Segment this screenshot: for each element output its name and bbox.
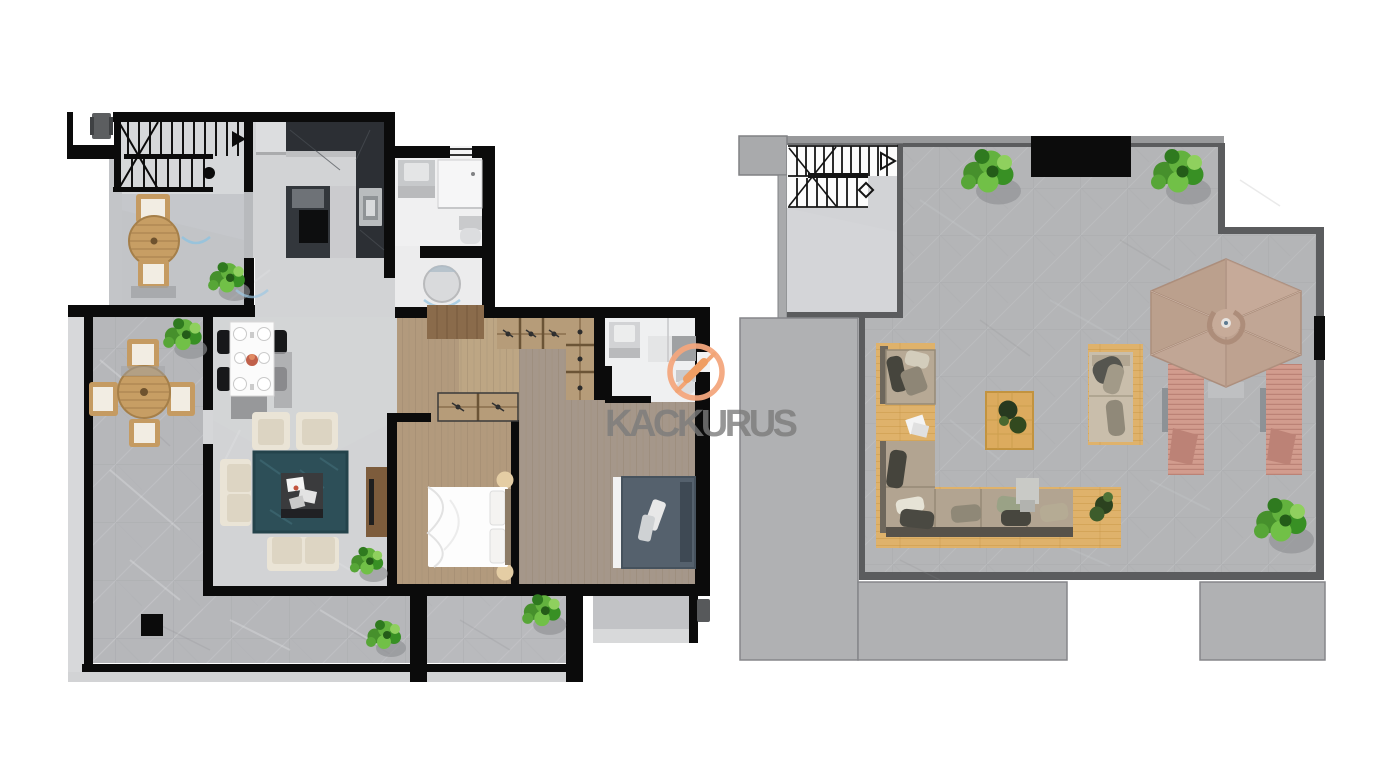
svg-text:KACKURUS: KACKURUS [605,403,799,445]
